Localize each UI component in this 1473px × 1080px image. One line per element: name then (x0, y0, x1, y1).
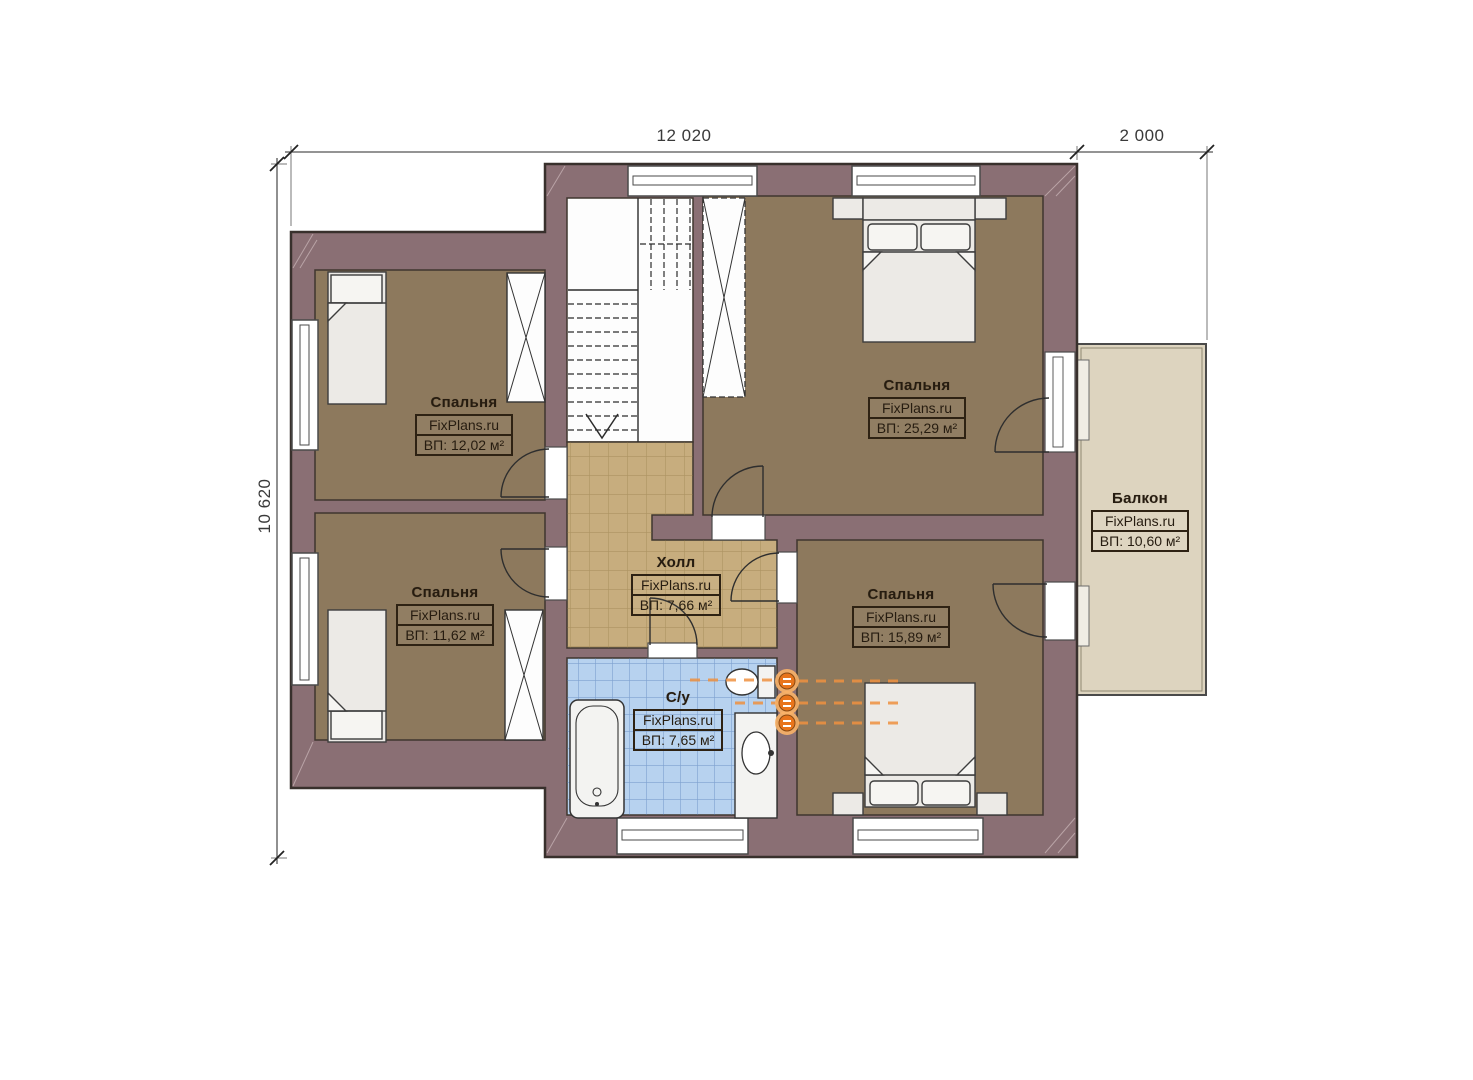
room-area: ВП: 12,02 м² (417, 434, 511, 454)
nightstand (833, 198, 863, 219)
watermark-text: FixPlans.ru (398, 606, 491, 624)
balcony-threshold-top (1077, 360, 1089, 440)
room-info-box: FixPlans.ru ВП: 11,62 м² (396, 604, 493, 646)
room-label-balcony: Балкон FixPlans.ru ВП: 10,60 м² (1070, 490, 1210, 552)
room-name: С/у (608, 689, 748, 706)
ventilation-shaft (703, 198, 745, 397)
window-left-bedroom-bl (292, 553, 318, 685)
room-label-bedroom-br: Спальня FixPlans.ru ВП: 15,89 м² (831, 586, 971, 648)
nightstand (833, 793, 863, 815)
room-info-box: FixPlans.ru ВП: 7,65 м² (633, 709, 724, 751)
room-area: ВП: 11,62 м² (398, 624, 491, 644)
floor-staircase (567, 198, 693, 442)
room-label-hall: Холл FixPlans.ru ВП: 7,66 м² (606, 554, 746, 616)
room-name: Спальня (394, 394, 534, 411)
window-top-bedroom-tr (852, 166, 980, 196)
balcony-threshold-bottom (1077, 586, 1089, 646)
window-top-stairs (628, 166, 757, 196)
watermark-text: FixPlans.ru (870, 399, 964, 417)
room-name: Холл (606, 554, 746, 571)
room-info-box: FixPlans.ru ВП: 7,66 м² (631, 574, 722, 616)
room-area: ВП: 7,65 м² (635, 729, 722, 749)
watermark-text: FixPlans.ru (417, 416, 511, 434)
room-info-box: FixPlans.ru ВП: 10,60 м² (1091, 510, 1189, 552)
room-label-bedroom-tl: Спальня FixPlans.ru ВП: 12,02 м² (394, 394, 534, 456)
room-area: ВП: 25,29 м² (870, 417, 964, 437)
room-name: Спальня (831, 586, 971, 603)
riser-symbols (777, 671, 797, 733)
wardrobe-bedroom-tl (507, 273, 545, 402)
nightstand (975, 198, 1006, 219)
room-name: Спальня (375, 584, 515, 601)
room-label-bedroom-bl: Спальня FixPlans.ru ВП: 11,62 м² (375, 584, 515, 646)
window-left-bedroom-tl (292, 320, 318, 450)
room-label-bathroom: С/у FixPlans.ru ВП: 7,65 м² (608, 689, 748, 751)
floor-plan-canvas (0, 0, 1473, 1080)
dimension-width-balcony: 2 000 (1082, 126, 1202, 146)
window-bottom-bathroom (617, 818, 748, 854)
room-info-box: FixPlans.ru ВП: 12,02 м² (415, 414, 513, 456)
dimension-height: 10 620 (255, 456, 275, 556)
room-area: ВП: 10,60 м² (1093, 530, 1187, 550)
room-name: Балкон (1070, 490, 1210, 507)
nightstand (977, 793, 1007, 815)
window-bottom-bedroom-br (853, 818, 983, 854)
room-name: Спальня (847, 377, 987, 394)
watermark-text: FixPlans.ru (854, 608, 948, 626)
room-label-bedroom-tr: Спальня FixPlans.ru ВП: 25,29 м² (847, 377, 987, 439)
watermark-text: FixPlans.ru (1093, 512, 1187, 530)
bed-single-tl (328, 272, 386, 404)
watermark-text: FixPlans.ru (633, 576, 720, 594)
watermark-text: FixPlans.ru (635, 711, 722, 729)
floorplan-page: 12 020 2 000 10 620 Спальня FixPlans.ru … (0, 0, 1473, 1080)
room-info-box: FixPlans.ru ВП: 25,29 м² (868, 397, 966, 439)
room-info-box: FixPlans.ru ВП: 15,89 м² (852, 606, 950, 648)
dimension-width-main: 12 020 (624, 126, 744, 146)
room-area: ВП: 7,66 м² (633, 594, 720, 614)
room-area: ВП: 15,89 м² (854, 626, 948, 646)
